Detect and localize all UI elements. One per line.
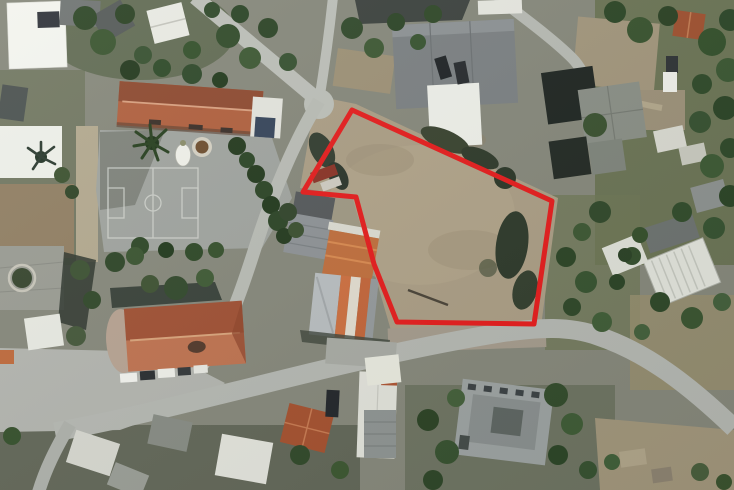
aerial-photo-canvas: [0, 0, 734, 490]
lighting-overlay: [0, 0, 734, 490]
satellite-image: [0, 0, 734, 490]
